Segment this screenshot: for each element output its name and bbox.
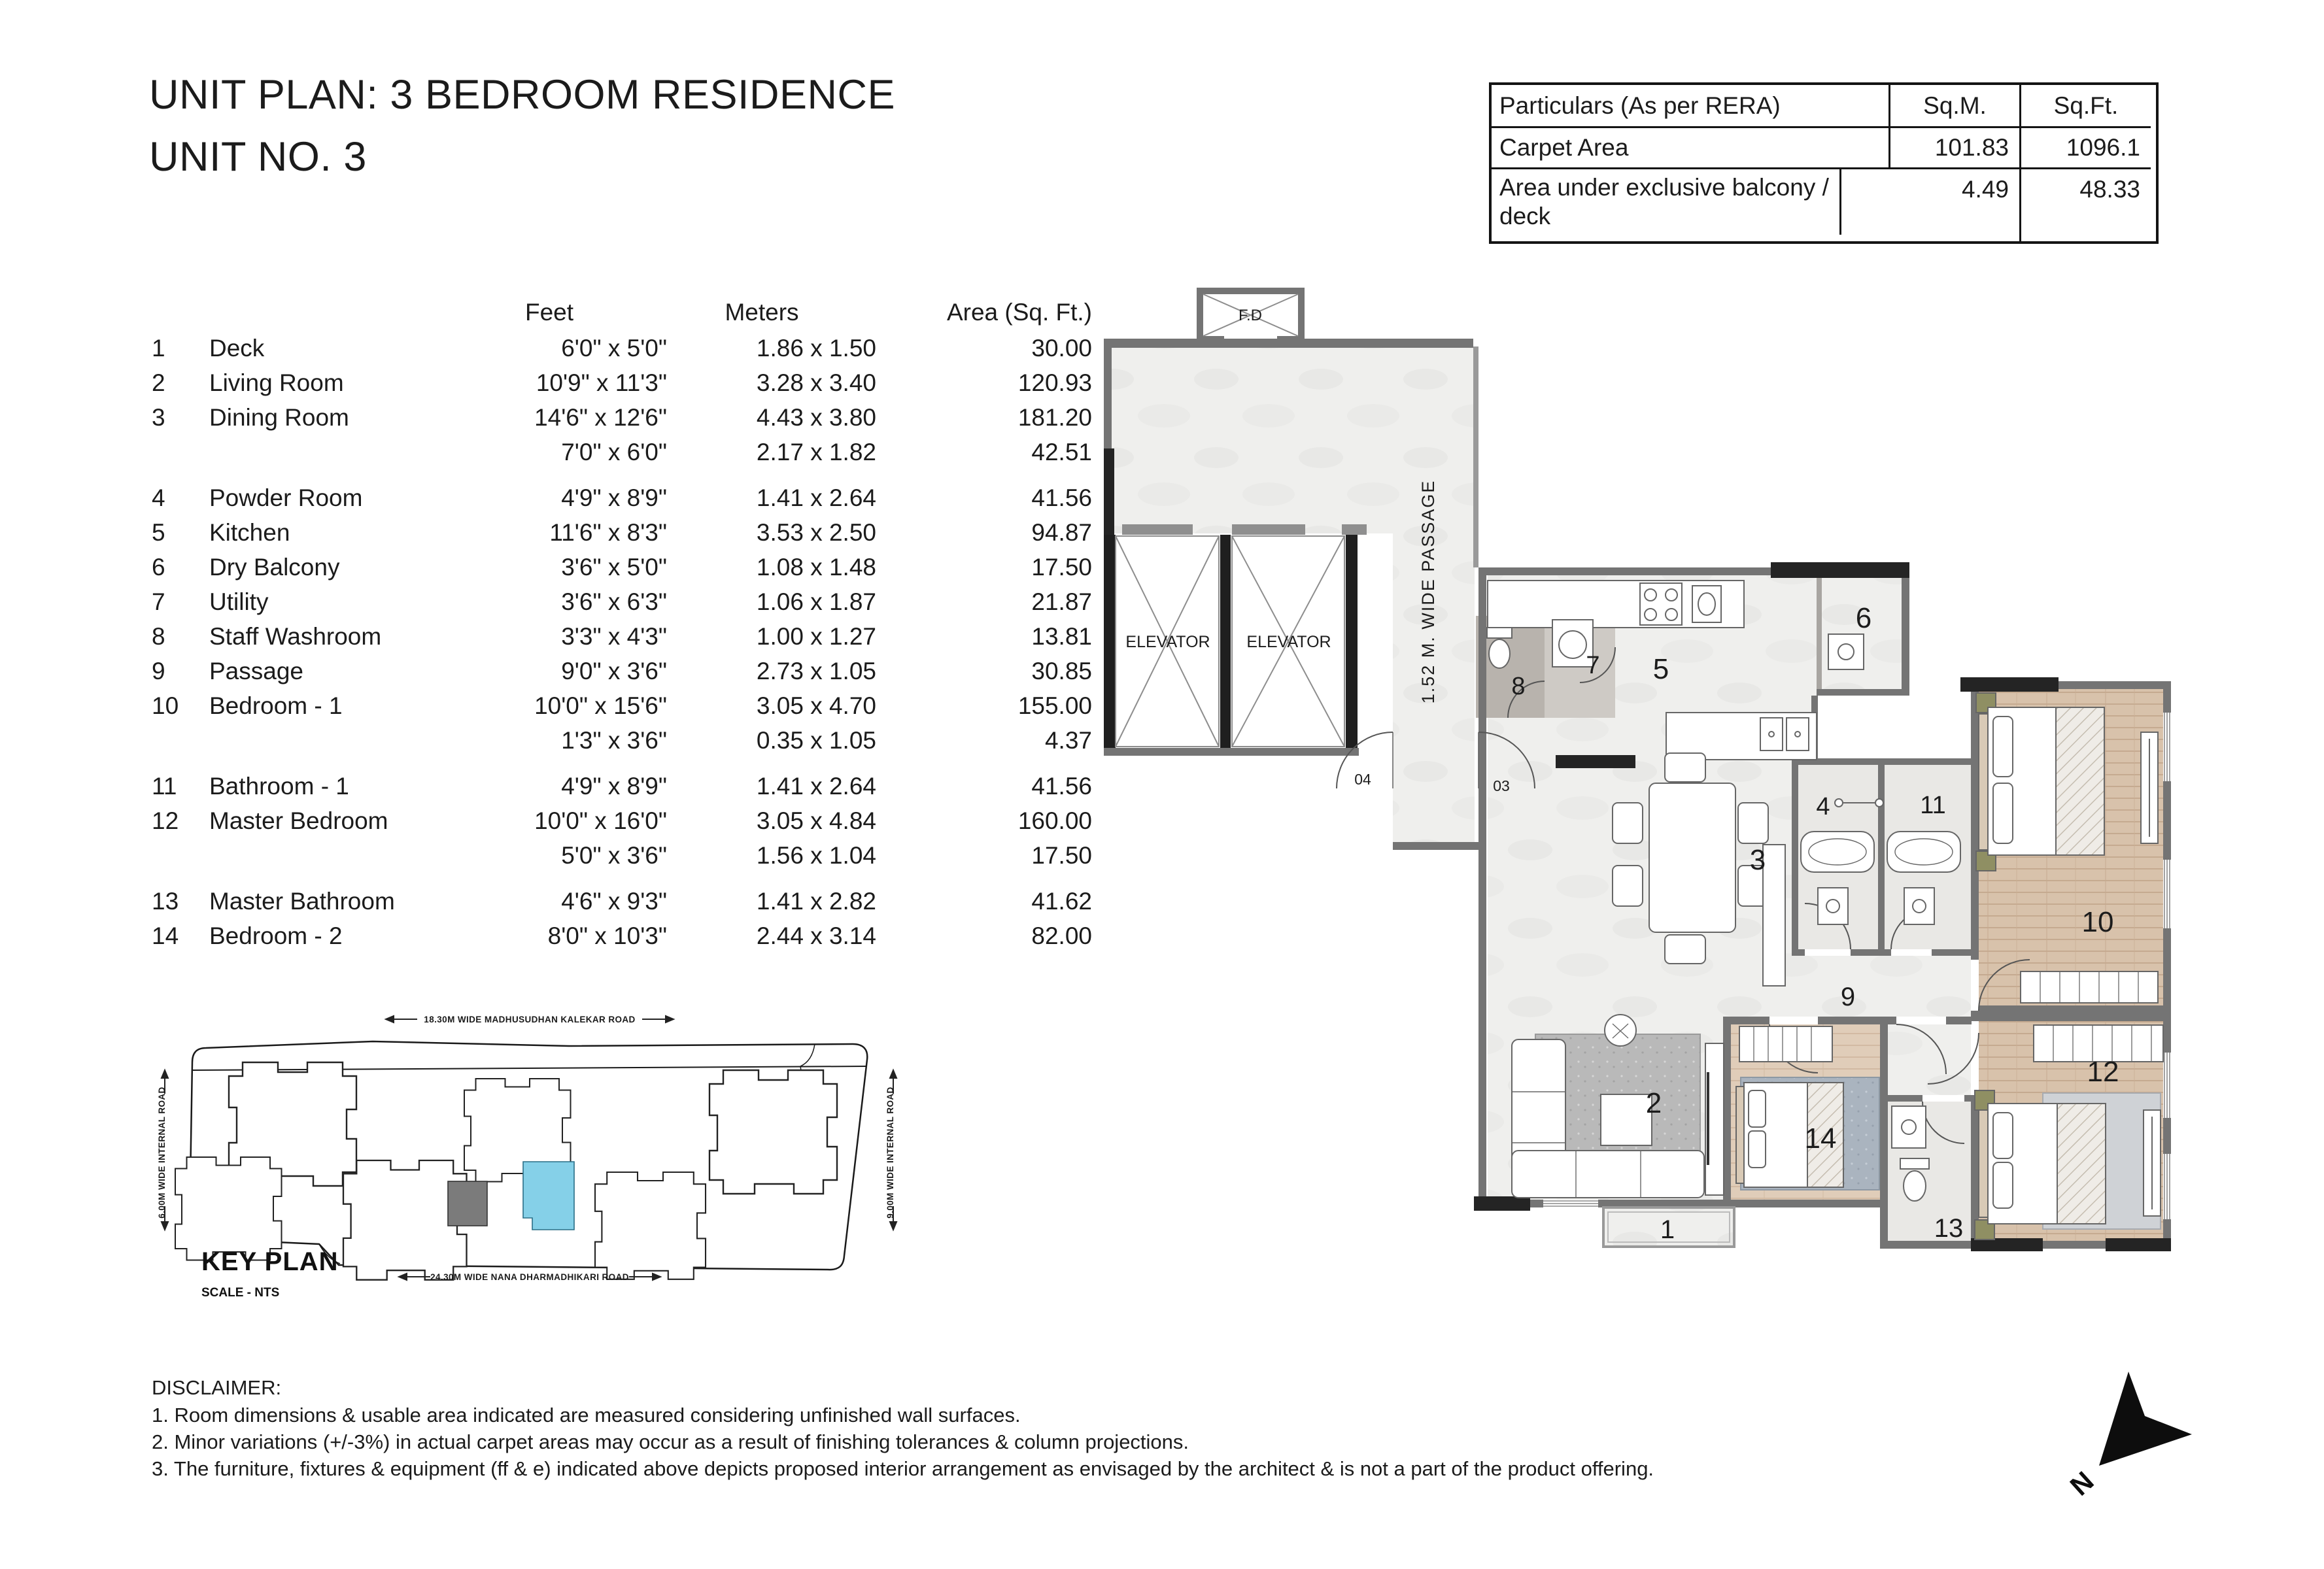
table-row: 13 Master Bathroom 4'6" x 9'3" 1.41 x 2.… — [152, 884, 1113, 919]
clubhouse-block — [448, 1181, 487, 1226]
plan-label-room-7-utility: 7 — [1586, 652, 1599, 679]
plan-label-room-8-staffwc: 8 — [1511, 673, 1525, 700]
pillow — [1993, 1113, 2013, 1158]
table-row: 7 Utility 3'6" x 6'3" 1.06 x 1.87 21.87 — [152, 584, 1113, 619]
disclaimer-item: 1. Room dimensions & usable area indicat… — [152, 1402, 1654, 1428]
north-arrow-icon — [2099, 1372, 2192, 1466]
key-plan-scale: SCALE - NTS — [201, 1286, 279, 1300]
plan-label-room-2-living: 2 — [1646, 1087, 1662, 1119]
rera-header-sqft: Sq.Ft. — [2021, 85, 2151, 128]
bed-headboard — [1979, 714, 1988, 850]
rera-header-row: Particulars (As per RERA) Sq.M. Sq.Ft. — [1492, 85, 2156, 128]
disclaimer-title: DISCLAIMER: — [152, 1374, 1654, 1401]
utility-sink-icon — [1828, 634, 1864, 669]
pillow — [1993, 1162, 2013, 1208]
toilet-icon — [1487, 628, 1512, 638]
floor-plan: F.DELEVATORELEVATOR1.52 M. WIDE PASSAGE0… — [1085, 281, 2197, 1258]
bed-headboard — [1736, 1087, 1744, 1183]
disclaimer-item: 3. The furniture, fixtures & equipment (… — [152, 1455, 1654, 1482]
key-plan: 18.30M WIDE MADHUSUDHAN KALEKAR ROAD 24.… — [150, 1010, 909, 1321]
road-label-top: 18.30M WIDE MADHUSUDHAN KALEKAR ROAD — [424, 1015, 635, 1024]
table-row: 4 Powder Room 4'9" x 8'9" 1.41 x 2.64 41… — [152, 481, 1113, 515]
plant-icon — [1605, 1015, 1636, 1046]
pillow — [1993, 783, 2013, 843]
sofa-chaise — [1512, 1151, 1704, 1198]
table-row: 3 Dining Room 14'6" x 12'6" 4.43 x 3.80 … — [152, 400, 1113, 435]
plan-label-room-13-masterbath: 13 — [1934, 1214, 1964, 1243]
table-row: 6 Dry Balcony 3'6" x 5'0" 1.08 x 1.48 17… — [152, 550, 1113, 584]
plan-label-passage-width: 1.52 M. WIDE PASSAGE — [1418, 480, 1438, 704]
plan-label-room-4-powder: 4 — [1816, 793, 1830, 820]
rera-row-sqft: 48.33 — [2021, 169, 2151, 241]
bathtub-icon — [1801, 832, 1874, 872]
washbasin-icon — [1904, 888, 1934, 924]
rera-header-sqm: Sq.M. — [1890, 85, 2021, 128]
plan-label-room-10-bedroom1: 10 — [2082, 906, 2114, 938]
table-row: 8 Staff Washroom 3'3" x 4'3" 1.00 x 1.27… — [152, 619, 1113, 654]
plan-label-room-14-bedroom2: 14 — [1805, 1122, 1837, 1155]
rera-row-carpet: Carpet Area 101.83 1096.1 — [1492, 128, 2156, 169]
rera-row-balcony: Area under exclusive balcony / deck 4.49… — [1492, 169, 2156, 241]
disclaimer-item: 2. Minor variations (+/-3%) in actual ca… — [152, 1428, 1654, 1455]
rera-row-label: Area under exclusive balcony / deck — [1492, 169, 1841, 235]
plan-label-room-12-masterbed: 12 — [2087, 1056, 2119, 1088]
plan-label-room-3-dining: 3 — [1750, 844, 1766, 876]
room-table-header: Feet Meters Area (Sq. Ft.) — [152, 294, 1113, 331]
plan-label-room-9-passage: 9 — [1841, 983, 1855, 1011]
pillow — [1749, 1090, 1766, 1127]
table-row: 11 Bathroom - 1 4'9" x 8'9" 1.41 x 2.64 … — [152, 769, 1113, 803]
washbasin-icon — [1818, 888, 1848, 924]
dining-table — [1649, 783, 1735, 932]
rera-row-label: Carpet Area — [1492, 128, 1890, 169]
rera-row-sqm: 4.49 — [1890, 169, 2021, 241]
plan-label-room-6-drybalcony: 6 — [1856, 602, 1871, 634]
plan-label-elevator-2: ELEVATOR — [1246, 633, 1331, 651]
title-line-1: UNIT PLAN: 3 BEDROOM RESIDENCE — [149, 64, 895, 126]
table-row: 2 Living Room 10'9" x 11'3" 3.28 x 3.40 … — [152, 365, 1113, 400]
kitchen-sink-icon — [1692, 586, 1721, 622]
title-line-2: UNIT NO. 3 — [149, 126, 895, 188]
wardrobe — [1739, 1026, 1832, 1062]
rera-row-sqft: 1096.1 — [2021, 128, 2151, 169]
table-row: 1 Deck 6'0" x 5'0" 1.86 x 1.50 30.00 — [152, 331, 1113, 365]
table-row: 5'0" x 3'6" 1.56 x 1.04 17.50 — [152, 838, 1113, 873]
table-row: 1'3" x 3'6" 0.35 x 1.05 4.37 — [152, 723, 1113, 758]
plan-label-room-1-deck: 1 — [1660, 1215, 1675, 1244]
rera-header-particulars: Particulars (As per RERA) — [1492, 85, 1890, 128]
wardrobe — [2021, 971, 2158, 1003]
blanket — [2057, 1104, 2106, 1224]
plan-label-room-11-bath1: 11 — [1920, 792, 1945, 819]
blanket — [2056, 707, 2104, 855]
plan-label-fire-duct: F.D — [1239, 307, 1262, 324]
room-dimension-table: Feet Meters Area (Sq. Ft.) 1 Deck 6'0" x… — [152, 294, 1113, 953]
page-title: UNIT PLAN: 3 BEDROOM RESIDENCE UNIT NO. … — [149, 64, 895, 188]
table-row: 9 Passage 9'0" x 3'6" 2.73 x 1.05 30.85 — [152, 654, 1113, 688]
road-label-left: 6.00M WIDE INTERNAL ROAD — [157, 1087, 167, 1218]
table-row: 14 Bedroom - 2 8'0" x 10'3" 2.44 x 3.14 … — [152, 919, 1113, 953]
rera-row-sqm: 101.83 — [1890, 128, 2021, 169]
table-row: 10 Bedroom - 1 10'0" x 15'6" 3.05 x 4.70… — [152, 688, 1113, 723]
bathtub-icon — [1887, 832, 1960, 872]
header-area: Area (Sq. Ft.) — [876, 299, 1092, 326]
pillow — [1993, 717, 2013, 777]
plan-label-elevator-1: ELEVATOR — [1125, 633, 1210, 651]
north-label: N — [2066, 1465, 2100, 1501]
toilet-icon — [1900, 1158, 1929, 1169]
key-plan-title: KEY PLAN — [201, 1247, 339, 1276]
table-row: 7'0" x 6'0" 2.17 x 1.82 42.51 — [152, 435, 1113, 469]
header-meters: Meters — [667, 299, 876, 326]
washbasin-icon — [1892, 1106, 1926, 1148]
plan-label-door-03: 03 — [1493, 777, 1510, 794]
table-row: 12 Master Bedroom 10'0" x 16'0" 3.05 x 4… — [152, 803, 1113, 838]
header-feet: Feet — [471, 299, 667, 326]
plan-label-door-04: 04 — [1354, 771, 1371, 788]
disclaimer: DISCLAIMER: 1. Room dimensions & usable … — [152, 1374, 1654, 1482]
road-label-right: 9.00M WIDE INTERNAL ROAD — [885, 1087, 895, 1218]
highlighted-building — [523, 1162, 574, 1230]
bed-headboard — [1979, 1110, 1988, 1217]
north-arrow: N — [2066, 1358, 2236, 1551]
plan-label-room-5-kitchen: 5 — [1653, 653, 1669, 685]
coffee-table — [1601, 1094, 1652, 1145]
rera-area-table: Particulars (As per RERA) Sq.M. Sq.Ft. C… — [1489, 82, 2159, 244]
pillow — [1749, 1131, 1766, 1168]
table-row: 5 Kitchen 11'6" x 8'3" 3.53 x 2.50 94.87 — [152, 515, 1113, 550]
road-label-bottom: 24.30M WIDE NANA DHARMADHIKARI ROAD — [430, 1272, 629, 1282]
